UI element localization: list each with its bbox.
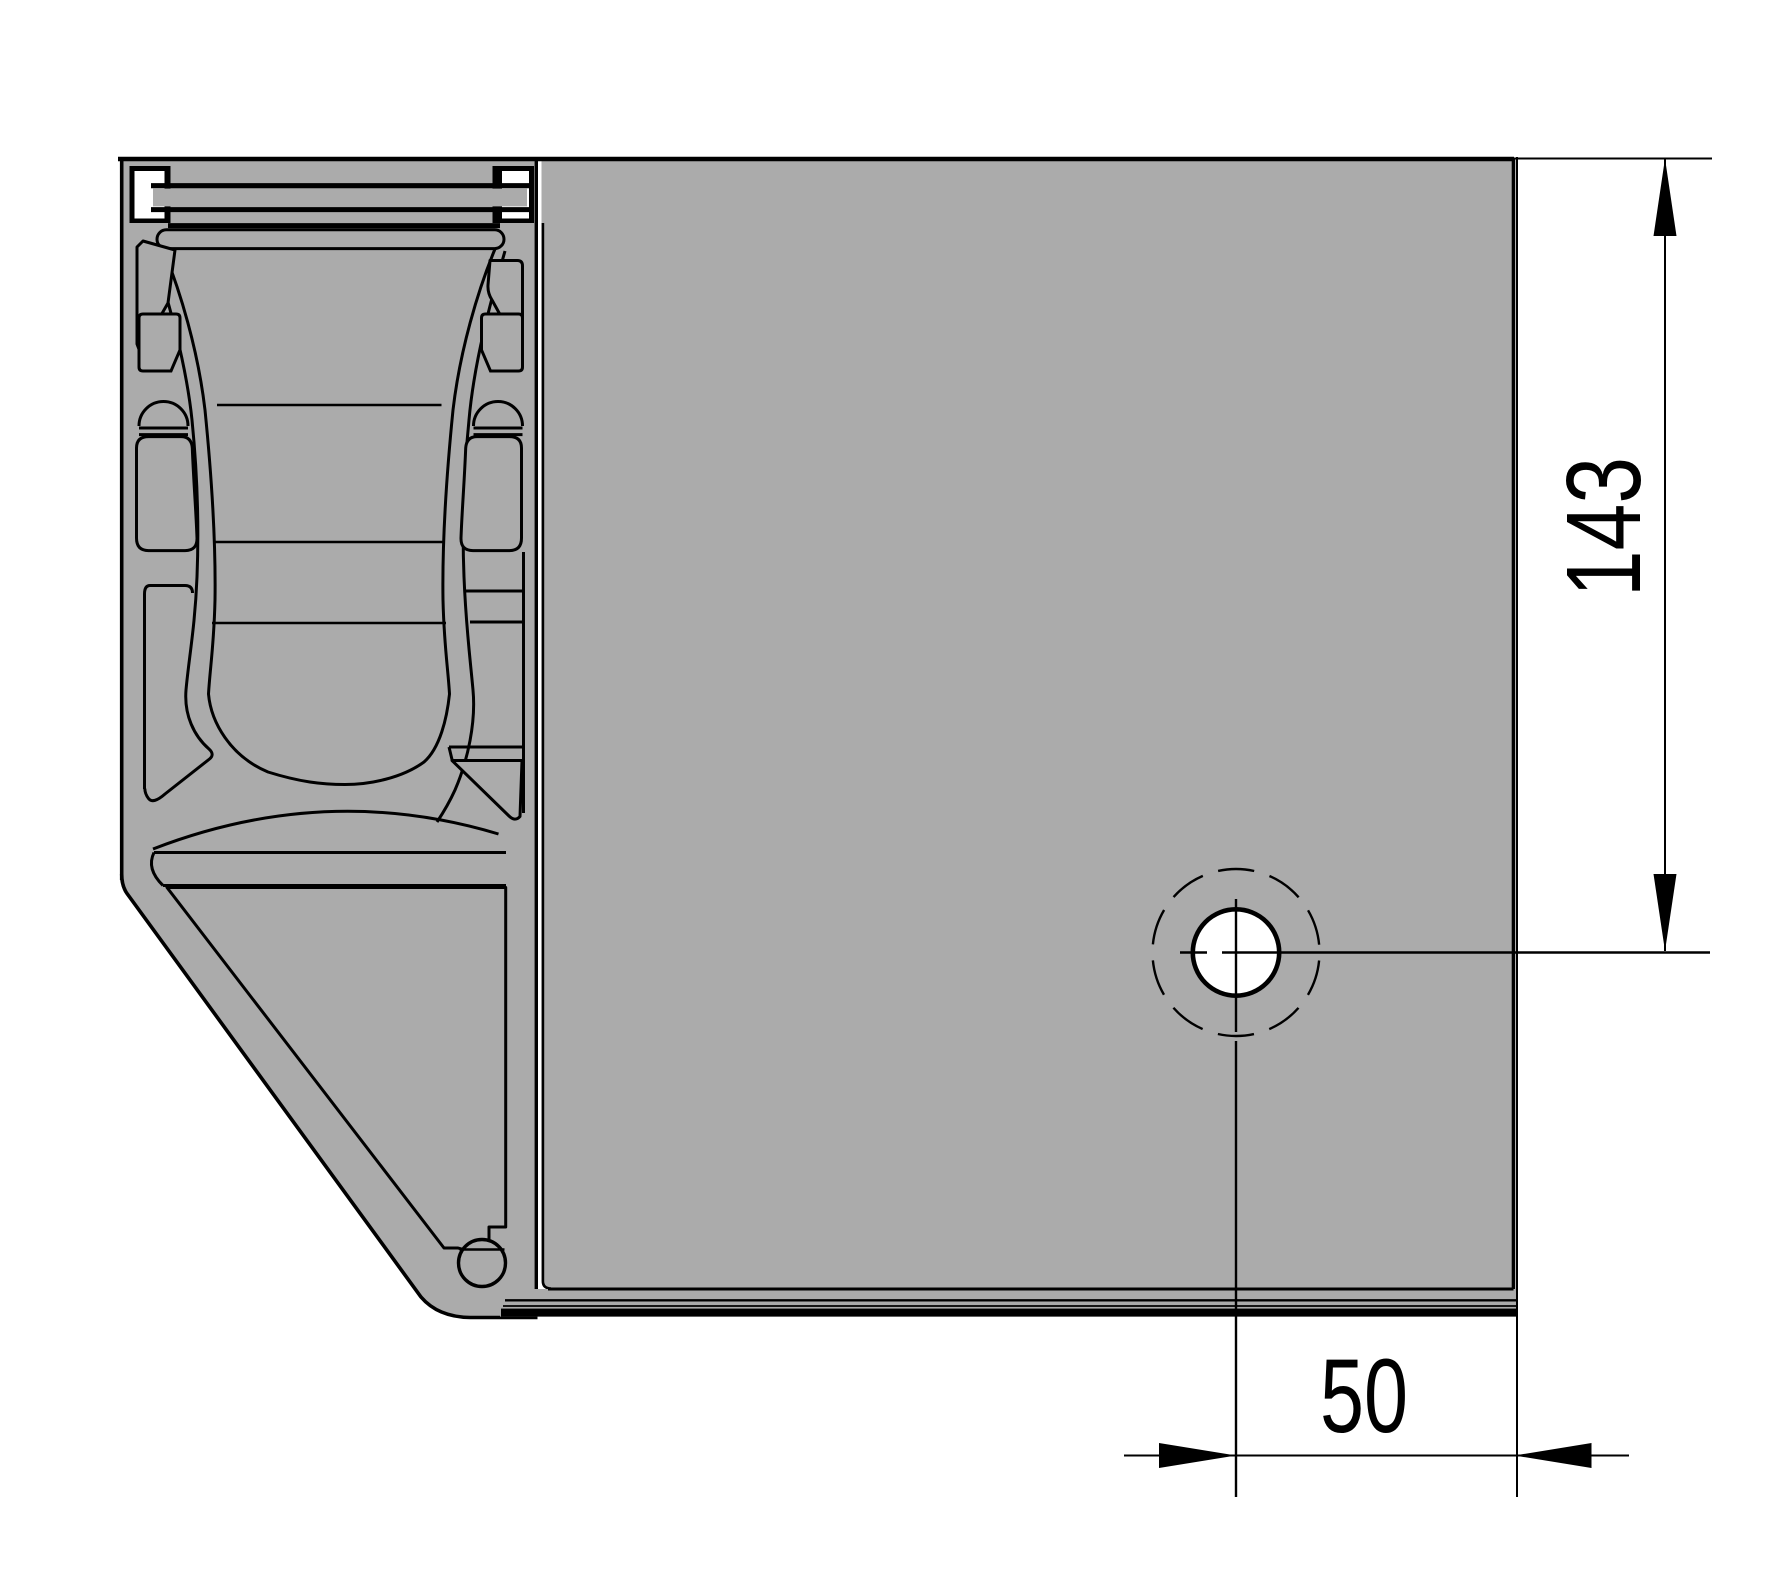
svg-text:50: 50 [1320, 1338, 1408, 1455]
svg-text:143: 143 [1545, 457, 1663, 597]
